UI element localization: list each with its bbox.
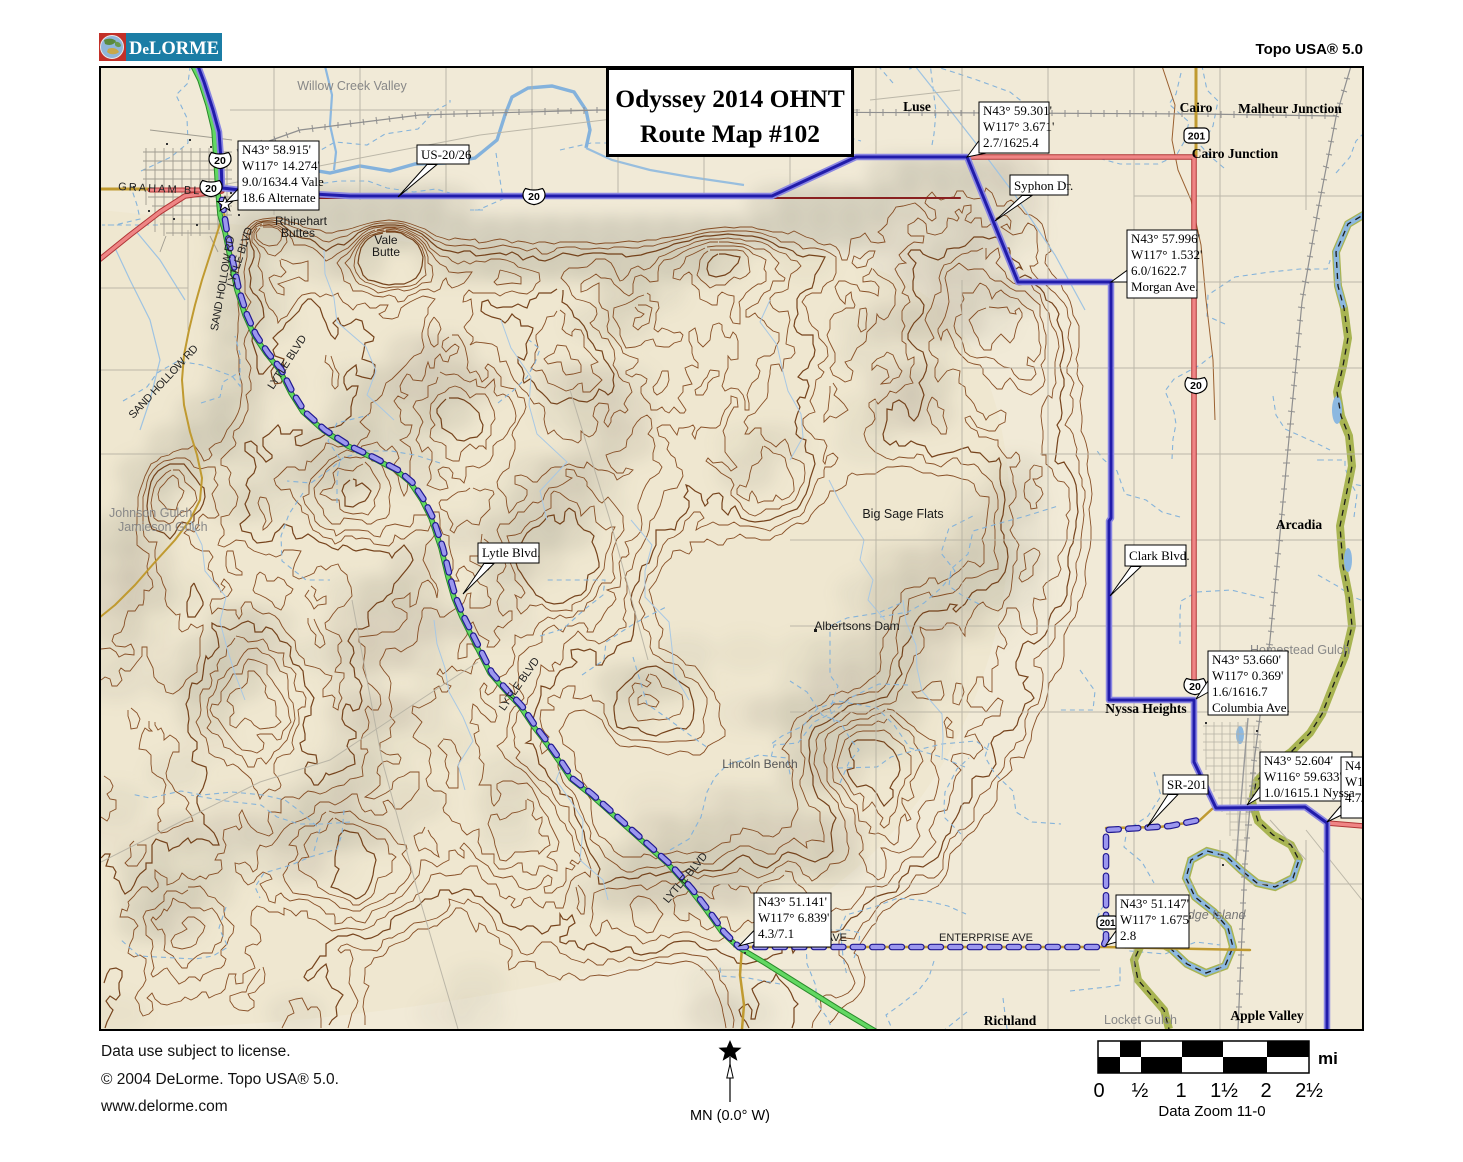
svg-text:W116° 59.633': W116° 59.633' <box>1264 769 1342 784</box>
svg-text:Richland: Richland <box>984 1013 1037 1028</box>
svg-text:4.3/7.1: 4.3/7.1 <box>758 926 794 941</box>
svg-text:Luse: Luse <box>903 99 931 114</box>
svg-text:N43° 58.915': N43° 58.915' <box>242 142 311 157</box>
svg-text:DeLORME: DeLORME <box>129 39 219 59</box>
svg-text:Morgan Ave.: Morgan Ave. <box>1131 279 1198 294</box>
svg-text:1.6/1616.7: 1.6/1616.7 <box>1212 684 1268 699</box>
svg-text:W117° 0.369': W117° 0.369' <box>1212 668 1283 683</box>
svg-text:Albertsons Dam: Albertsons Dam <box>814 619 899 633</box>
svg-text:20: 20 <box>1189 681 1201 693</box>
svg-text:N43° 53.660': N43° 53.660' <box>1212 652 1281 667</box>
svg-text:20: 20 <box>1190 380 1202 392</box>
svg-text:Willow Creek Valley: Willow Creek Valley <box>297 79 407 93</box>
svg-text:Cairo Junction: Cairo Junction <box>1192 146 1279 161</box>
svg-text:W117° 6.839': W117° 6.839' <box>758 910 829 925</box>
svg-text:20: 20 <box>214 155 226 167</box>
svg-text:Malheur Junction: Malheur Junction <box>1238 101 1342 116</box>
svg-text:Nyssa Heights: Nyssa Heights <box>1105 701 1186 716</box>
svg-text:N43° 59.301': N43° 59.301' <box>983 103 1052 118</box>
svg-text:Topo USA® 5.0: Topo USA® 5.0 <box>1256 41 1363 58</box>
svg-text:US-20/26: US-20/26 <box>421 147 472 162</box>
svg-text:0: 0 <box>1093 1080 1104 1102</box>
svg-text:N43° 52.604': N43° 52.604' <box>1264 753 1333 768</box>
svg-text:2.8: 2.8 <box>1120 928 1136 943</box>
svg-text:Arcadia: Arcadia <box>1276 517 1322 532</box>
svg-text:Data Zoom 11-0: Data Zoom 11-0 <box>1158 1103 1265 1120</box>
svg-text:mi: mi <box>1318 1049 1338 1068</box>
svg-text:Apple Valley: Apple Valley <box>1230 1008 1303 1023</box>
svg-text:W117° 3.671': W117° 3.671' <box>983 119 1054 134</box>
svg-text:6.0/1622.7: 6.0/1622.7 <box>1131 263 1187 278</box>
svg-text:Odyssey 2014 OHNT: Odyssey 2014 OHNT <box>615 84 845 113</box>
svg-text:Butte: Butte <box>372 245 400 259</box>
svg-text:1: 1 <box>1175 1080 1186 1102</box>
svg-text:18.6 Alternate: 18.6 Alternate <box>242 190 316 205</box>
svg-text:2½: 2½ <box>1295 1080 1323 1102</box>
svg-text:Syphon Dr.: Syphon Dr. <box>1014 178 1073 193</box>
svg-text:ENTERPRISE AVE: ENTERPRISE AVE <box>939 932 1033 944</box>
svg-text:½: ½ <box>1132 1080 1149 1102</box>
svg-text:Columbia Ave.: Columbia Ave. <box>1212 700 1290 715</box>
svg-text:© 2004 DeLorme. Topo USA® 5.0.: © 2004 DeLorme. Topo USA® 5.0. <box>101 1071 339 1088</box>
svg-text:1.0/1615.1 Nyssa: 1.0/1615.1 Nyssa <box>1264 785 1355 800</box>
svg-text:N43° 51.147': N43° 51.147' <box>1120 896 1189 911</box>
svg-text:Lytle Blvd.: Lytle Blvd. <box>482 545 541 560</box>
svg-text:2.7/1625.4: 2.7/1625.4 <box>983 135 1039 150</box>
svg-text:N43° 57.996': N43° 57.996' <box>1131 231 1200 246</box>
svg-text:Data use subject to license.: Data use subject to license. <box>101 1043 291 1060</box>
svg-text:20: 20 <box>528 191 540 203</box>
svg-text:MN (0.0° W): MN (0.0° W) <box>690 1108 770 1124</box>
svg-text:Cairo: Cairo <box>1180 100 1213 115</box>
svg-text:1½: 1½ <box>1210 1080 1238 1102</box>
svg-text:2: 2 <box>1260 1080 1271 1102</box>
svg-text:20: 20 <box>205 183 217 195</box>
svg-text:W117° 1.675': W117° 1.675' <box>1120 912 1191 927</box>
svg-text:Clark Blvd.: Clark Blvd. <box>1129 548 1190 563</box>
svg-text:W117° 14.274': W117° 14.274' <box>242 158 320 173</box>
svg-text:201: 201 <box>1188 131 1206 143</box>
svg-text:www.delorme.com: www.delorme.com <box>100 1098 228 1115</box>
svg-text:N4: N4 <box>1345 758 1361 773</box>
svg-text:W117° 1.532': W117° 1.532' <box>1131 247 1202 262</box>
svg-text:SR-201: SR-201 <box>1167 777 1207 792</box>
svg-text:Locket Gulch: Locket Gulch <box>1104 1013 1177 1027</box>
svg-text:Jamieson Gulch: Jamieson Gulch <box>118 520 208 534</box>
svg-text:Big Sage Flats: Big Sage Flats <box>862 507 943 521</box>
svg-text:Route Map #102: Route Map #102 <box>640 119 820 148</box>
svg-text:W1: W1 <box>1345 774 1364 789</box>
svg-text:Lincoln Bench: Lincoln Bench <box>722 757 797 771</box>
svg-text:Johnson Gulch: Johnson Gulch <box>109 506 192 520</box>
svg-text:N43° 51.141': N43° 51.141' <box>758 894 827 909</box>
svg-text:201: 201 <box>1100 918 1117 929</box>
svg-text:9.0/1634.4 Vale: 9.0/1634.4 Vale <box>242 174 324 189</box>
svg-text:Buttes: Buttes <box>281 226 315 240</box>
